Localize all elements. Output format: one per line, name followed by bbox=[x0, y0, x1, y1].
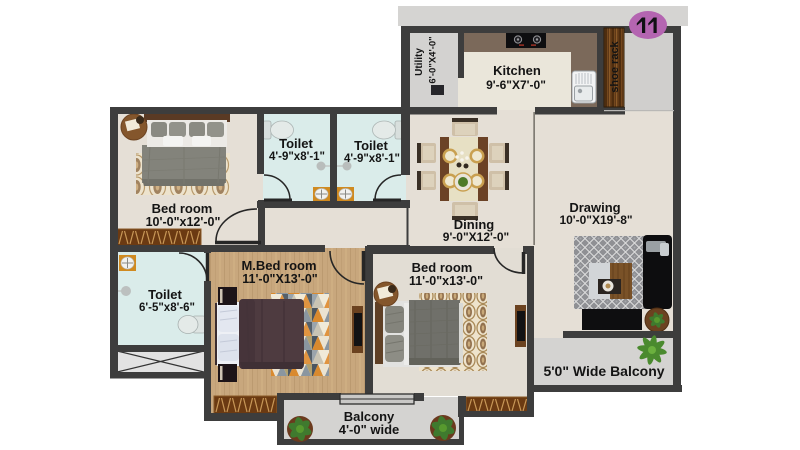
svg-text:9'-0"X12'-0": 9'-0"X12'-0" bbox=[443, 230, 509, 244]
svg-text:10'-0"X19'-8": 10'-0"X19'-8" bbox=[559, 213, 632, 227]
svg-text:4'-9"x8'-1": 4'-9"x8'-1" bbox=[344, 153, 400, 165]
svg-text:6'-0"X4'-0": 6'-0"X4'-0" bbox=[428, 36, 439, 83]
svg-text:11'-0"X13'-0": 11'-0"X13'-0" bbox=[242, 272, 318, 286]
svg-text:M.Bed room: M.Bed room bbox=[241, 258, 316, 273]
svg-text:10'-0"x12'-0": 10'-0"x12'-0" bbox=[146, 215, 221, 229]
svg-text:Toilet: Toilet bbox=[279, 136, 313, 151]
svg-text:Toilet: Toilet bbox=[354, 138, 388, 153]
svg-text:Toilet: Toilet bbox=[148, 287, 182, 302]
svg-text:Kitchen: Kitchen bbox=[493, 63, 541, 78]
svg-text:4'-0" wide: 4'-0" wide bbox=[339, 422, 400, 437]
svg-text:shoe rack: shoe rack bbox=[609, 40, 621, 92]
svg-text:6'-5"x8'-6": 6'-5"x8'-6" bbox=[139, 302, 195, 314]
svg-text:9'-6"X7'-0": 9'-6"X7'-0" bbox=[486, 78, 546, 92]
svg-text:5'0" Wide Balcony: 5'0" Wide Balcony bbox=[543, 363, 664, 379]
svg-text:4'-9"x8'-1": 4'-9"x8'-1" bbox=[269, 151, 325, 163]
svg-text:Bed room: Bed room bbox=[152, 201, 213, 216]
svg-text:11'-0"x13'-0": 11'-0"x13'-0" bbox=[409, 274, 483, 288]
svg-text:Bed room: Bed room bbox=[412, 260, 473, 275]
svg-text:Utility: Utility bbox=[414, 48, 425, 76]
